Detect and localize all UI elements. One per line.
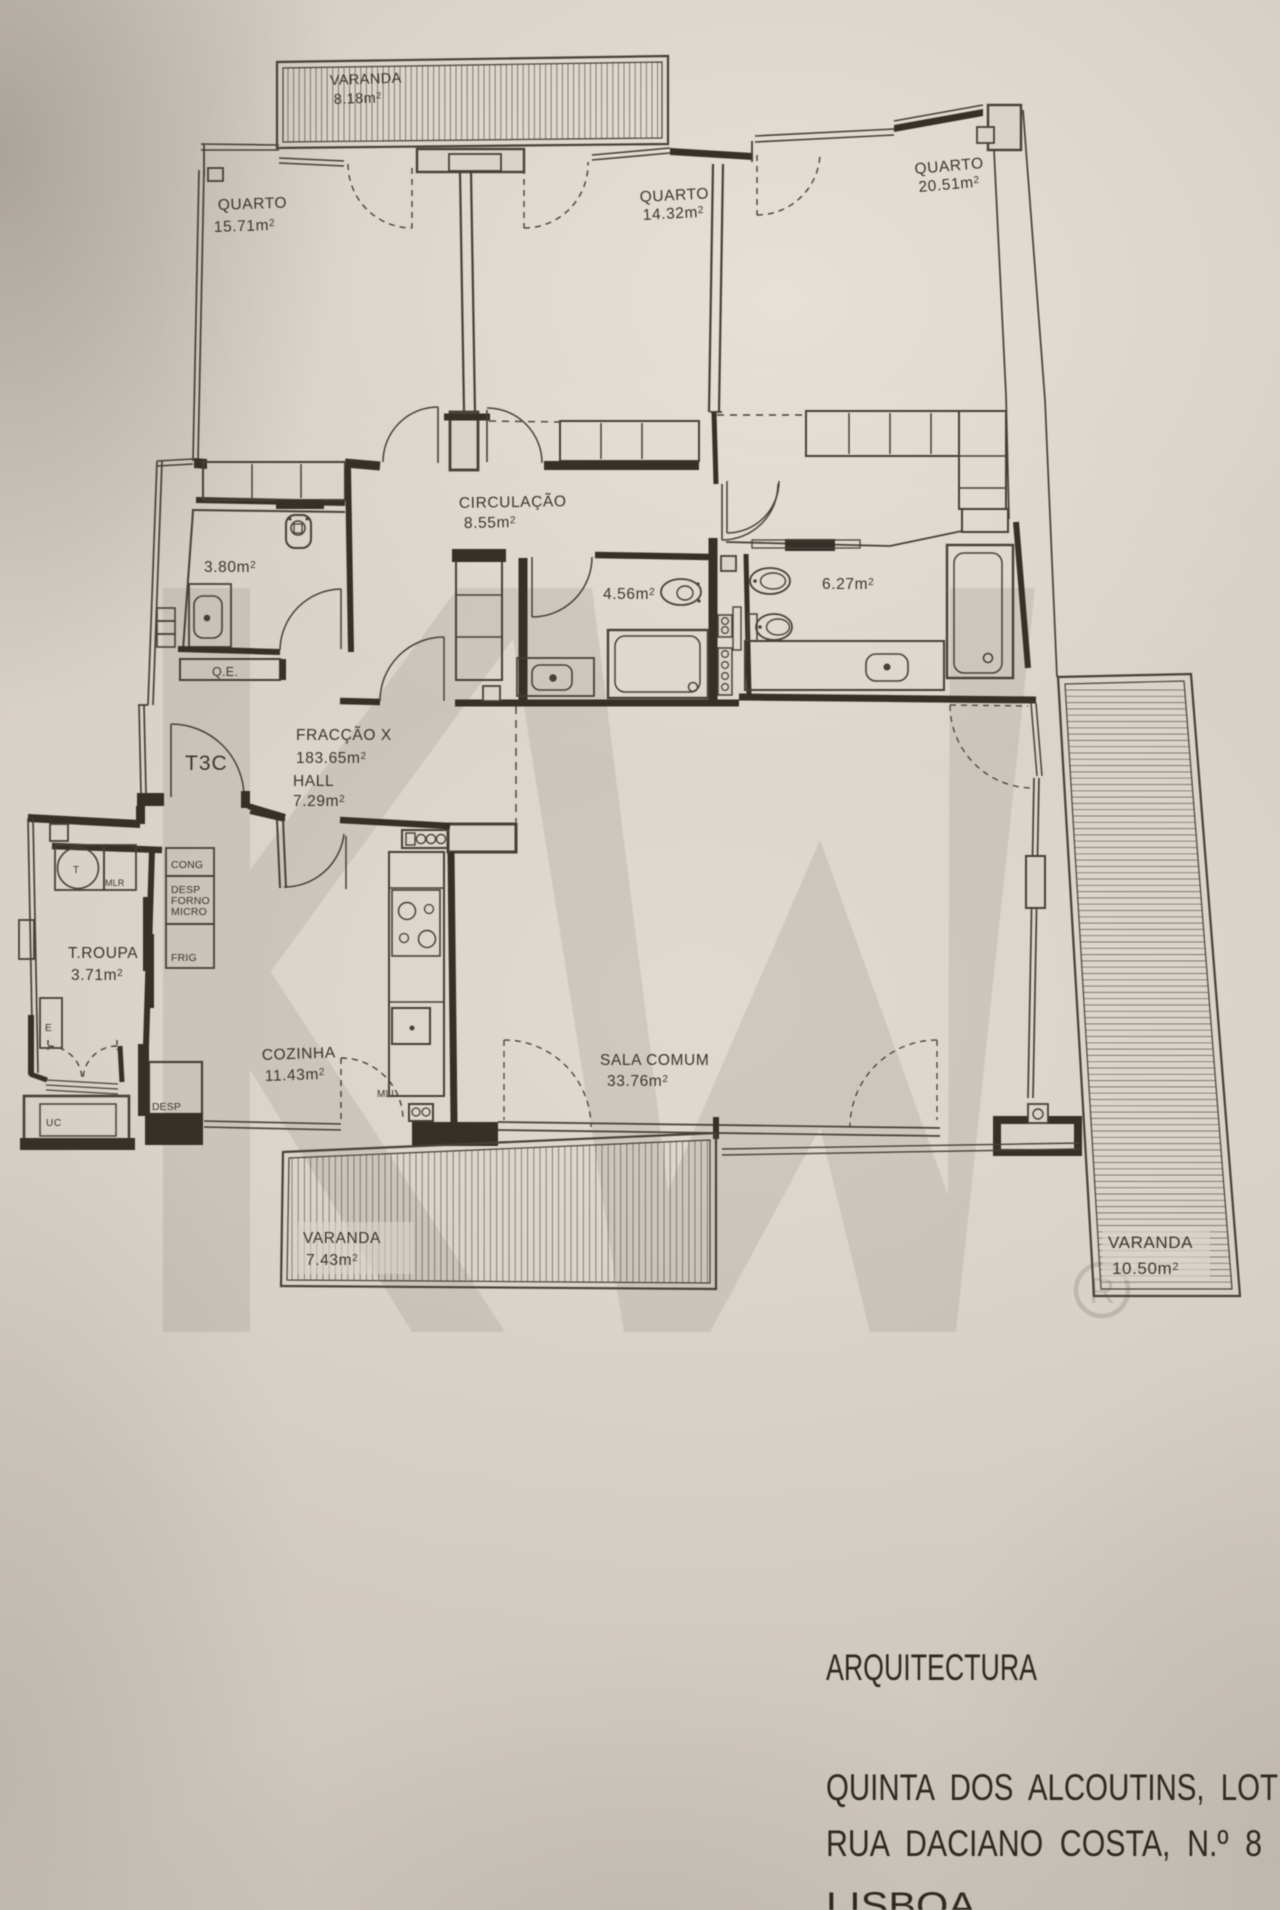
svg-text:20.51m2: 20.51m2	[918, 174, 981, 196]
svg-text:33.76m2: 33.76m2	[607, 1073, 668, 1090]
svg-text:MLL: MLL	[377, 1089, 397, 1100]
svg-text:VARANDA: VARANDA	[330, 71, 402, 89]
svg-text:14.32m2: 14.32m2	[642, 204, 704, 224]
svg-text:8.18m2: 8.18m2	[334, 90, 382, 108]
svg-text:UC: UC	[46, 1118, 62, 1129]
svg-text:3.80m2: 3.80m2	[204, 559, 256, 576]
svg-text:Q.E.: Q.E.	[212, 665, 238, 679]
svg-text:T.ROUPA: T.ROUPA	[68, 945, 138, 962]
svg-text:MICRO: MICRO	[171, 906, 207, 918]
svg-text:MLR: MLR	[105, 878, 125, 888]
svg-text:VARANDA: VARANDA	[303, 1230, 381, 1247]
svg-text:10.50m2: 10.50m2	[1112, 1259, 1179, 1278]
svg-text:4.56m2: 4.56m2	[603, 586, 655, 603]
svg-text:LISBOA: LISBOA	[826, 1885, 976, 1910]
svg-text:RUA DACIANO COSTA, N.º 8: RUA DACIANO COSTA, N.º 8	[826, 1823, 1262, 1864]
svg-text:CONG: CONG	[171, 859, 203, 871]
svg-text:CIRCULAÇÃO: CIRCULAÇÃO	[459, 493, 567, 512]
svg-text:T: T	[73, 865, 80, 876]
svg-text:SALA COMUM: SALA COMUM	[600, 1052, 709, 1069]
svg-text:15.71m2: 15.71m2	[214, 217, 276, 236]
svg-text:VARANDA: VARANDA	[1108, 1233, 1193, 1252]
svg-text:DESP: DESP	[152, 1101, 181, 1113]
svg-text:11.43m2: 11.43m2	[265, 1066, 326, 1085]
svg-text:QUINTA DOS ALCOUTINS, LOT: QUINTA DOS ALCOUTINS, LOT	[826, 1767, 1278, 1808]
svg-text:7.43m2: 7.43m2	[306, 1252, 358, 1269]
svg-text:E: E	[45, 1023, 52, 1034]
svg-text:6.27m2: 6.27m2	[822, 576, 874, 593]
svg-text:FRACÇÃO X: FRACÇÃO X	[296, 727, 392, 744]
svg-text:7.29m2: 7.29m2	[293, 793, 345, 810]
svg-text:HALL: HALL	[293, 773, 334, 790]
svg-text:COZINHA: COZINHA	[262, 1044, 337, 1064]
svg-text:3.71m2: 3.71m2	[71, 967, 123, 984]
svg-text:QUARTO: QUARTO	[218, 195, 288, 214]
svg-text:ARQUITECTURA: ARQUITECTURA	[826, 1647, 1037, 1688]
svg-text:FRIG: FRIG	[171, 952, 197, 964]
svg-text:8.55m2: 8.55m2	[464, 514, 517, 532]
svg-text:T3C: T3C	[185, 752, 228, 775]
svg-text:QUARTO: QUARTO	[639, 185, 709, 206]
svg-text:183.65m2: 183.65m2	[296, 750, 367, 767]
